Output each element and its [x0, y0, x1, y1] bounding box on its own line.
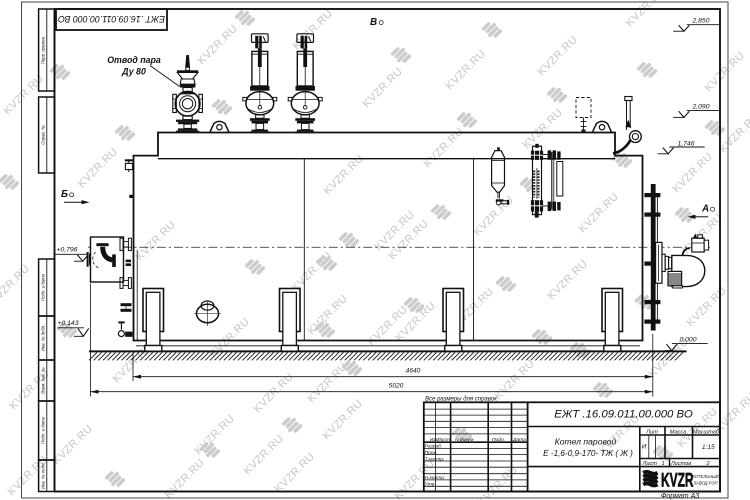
- svg-text:ЕЖТ .16.09.011.00.000 ВО: ЕЖТ .16.09.011.00.000 ВО: [554, 409, 693, 421]
- svg-text:В: В: [370, 17, 377, 28]
- svg-text:2,850: 2,850: [691, 18, 709, 25]
- svg-text:Утв.: Утв.: [425, 482, 436, 488]
- svg-text:Подп. и дата: Подп. и дата: [40, 416, 45, 444]
- svg-text:Взам. инв. №: Взам. инв. №: [40, 367, 45, 394]
- svg-text:+0,796: +0,796: [57, 247, 78, 254]
- svg-text:5020: 5020: [389, 382, 404, 389]
- svg-text:Масштаб: Масштаб: [693, 429, 720, 435]
- svg-text:0,000: 0,000: [679, 337, 696, 344]
- svg-text:Справ. №: Справ. №: [40, 125, 45, 145]
- svg-text:Б: Б: [61, 189, 68, 200]
- svg-text:Е -1,6-0,9-170- ТЖ ( Ж ): Е -1,6-0,9-170- ТЖ ( Ж ): [543, 449, 633, 458]
- svg-text:ЗАВОД РЭП: ЗАВОД РЭП: [693, 481, 718, 486]
- svg-text:Н.контр.: Н.контр.: [425, 475, 446, 481]
- svg-text:Подп. и дата: Подп. и дата: [40, 273, 45, 301]
- svg-text:КОТЕЛЬНЫЙ: КОТЕЛЬНЫЙ: [692, 474, 718, 479]
- svg-text:Лит: Лит: [645, 429, 658, 435]
- svg-text:И: И: [642, 444, 647, 451]
- svg-text:Листов: Листов: [670, 461, 691, 467]
- svg-text:Лист: Лист: [641, 461, 657, 467]
- svg-text:А: А: [701, 204, 709, 215]
- svg-text:Ду 80: Ду 80: [121, 67, 146, 77]
- svg-text:Разраб.: Разраб.: [425, 444, 443, 450]
- svg-text:Котел паровой: Котел паровой: [555, 436, 617, 446]
- svg-text:ЕЖТ .16.09.011.00.000 ВО: ЕЖТ .16.09.011.00.000 ВО: [58, 14, 165, 24]
- svg-text:1,746: 1,746: [677, 140, 694, 147]
- svg-text:Лист: Лист: [436, 437, 450, 443]
- svg-text:Т.контр.: Т.контр.: [425, 456, 445, 462]
- svg-text:Отвод пара: Отвод пара: [107, 55, 161, 65]
- svg-text:Дата: Дата: [512, 437, 526, 443]
- svg-text:Подп.: Подп.: [492, 437, 505, 443]
- svg-text:Перв. примен.: Перв. примен.: [40, 36, 45, 65]
- svg-text:N докум: N докум: [455, 437, 474, 443]
- svg-text:4640: 4640: [406, 367, 421, 374]
- svg-text:+0,143: +0,143: [58, 320, 79, 327]
- svg-text:Инв. № дубл.: Инв. № дубл.: [40, 325, 45, 351]
- svg-text:Пров.: Пров.: [425, 450, 438, 456]
- svg-text:2,090: 2,090: [691, 103, 709, 110]
- svg-text:KVZR: KVZR: [661, 471, 694, 492]
- svg-text:1:15: 1:15: [702, 444, 715, 451]
- svg-text:Формат А3: Формат А3: [661, 493, 699, 500]
- svg-text:Масса: Масса: [670, 429, 687, 435]
- svg-text:Инв. № подл.: Инв. № подл.: [40, 462, 45, 489]
- svg-text:1: 1: [661, 461, 664, 467]
